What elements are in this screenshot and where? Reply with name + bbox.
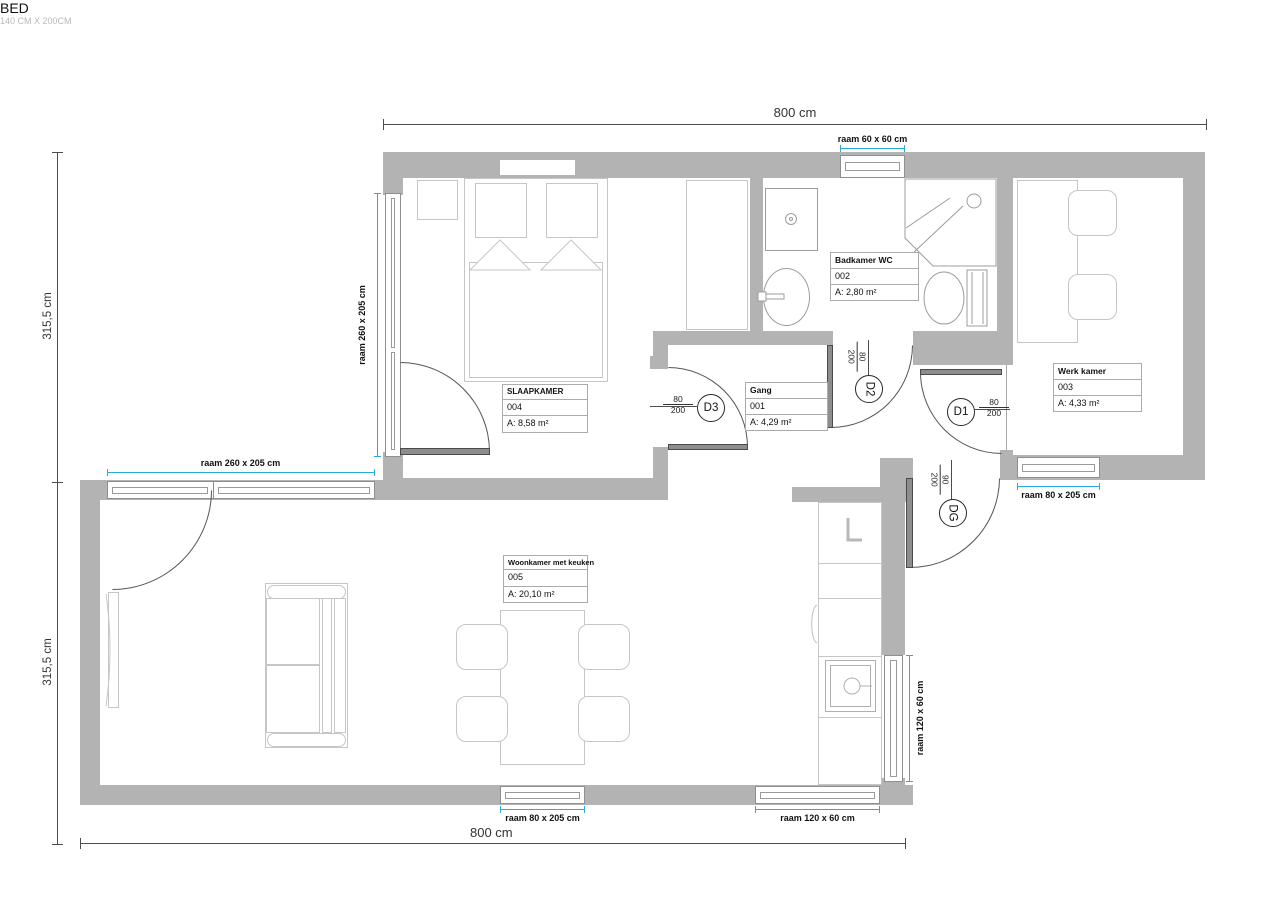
wall-bedroom-bottom-horizontal bbox=[653, 331, 763, 345]
door-height: 200 bbox=[663, 405, 693, 415]
bed-pillow-left bbox=[475, 183, 527, 238]
room-number: 002 bbox=[830, 268, 919, 285]
room-area: A: 4,29 m² bbox=[745, 414, 828, 431]
wall-door-d1-hinge-block bbox=[1000, 450, 1013, 480]
bathroom-sink bbox=[763, 268, 810, 326]
dim-left-line bbox=[57, 152, 58, 845]
toilet bbox=[924, 270, 987, 326]
wall-door-d2-hinge-block bbox=[816, 331, 833, 345]
dim-window-werk-line bbox=[1017, 486, 1100, 487]
dim-tick bbox=[755, 806, 756, 813]
door-width: 80 bbox=[663, 394, 693, 405]
window-glass bbox=[218, 487, 370, 494]
dim-window-werk-label: raam 80 x 205 cm bbox=[996, 490, 1121, 500]
room-table-badkamer: Badkamer WC 002 A: 2,80 m² bbox=[830, 253, 919, 301]
bed-duvet bbox=[469, 262, 603, 378]
desk-chair bbox=[1068, 190, 1117, 236]
dining-table bbox=[500, 610, 585, 765]
door-d1-leaf bbox=[920, 369, 1002, 375]
dim-window-lr-top-label: raam 260 x 205 cm bbox=[178, 458, 303, 468]
door-d2-size: 80 200 bbox=[846, 342, 867, 372]
door-height: 200 bbox=[929, 465, 939, 495]
dim-tick bbox=[500, 806, 501, 813]
door-dg-leaf bbox=[906, 478, 913, 568]
dim-window-lr-b1-line bbox=[500, 809, 585, 810]
kitchen-counter-divider bbox=[818, 656, 882, 657]
washing-machine bbox=[765, 188, 818, 251]
wall-door-d3-hinge-block bbox=[650, 356, 668, 369]
dim-tick bbox=[107, 469, 108, 476]
room-number: 001 bbox=[745, 398, 828, 415]
door-tag-dg: DG bbox=[939, 499, 967, 527]
window-glass bbox=[505, 792, 580, 799]
dim-window-bath-line bbox=[840, 148, 905, 149]
kitchen-sink-basin bbox=[830, 665, 871, 707]
dim-window-lr-right-label: raam 120 x 60 cm bbox=[915, 658, 925, 778]
radiator bbox=[108, 592, 119, 708]
dim-window-bedroom-left-label: raam 260 x 205 cm bbox=[357, 265, 367, 385]
dim-top-label: 800 cm bbox=[383, 105, 1207, 120]
dim-tick bbox=[374, 193, 381, 194]
dim-window-lr-right-line bbox=[909, 655, 910, 782]
desk-chair bbox=[1068, 274, 1117, 320]
dim-tick bbox=[80, 838, 81, 849]
sofa-armrest bbox=[267, 585, 346, 599]
sofa-cushion bbox=[266, 665, 320, 733]
window-glass bbox=[391, 352, 395, 450]
door-d1-size: 80 200 bbox=[979, 397, 1009, 418]
room-number: 003 bbox=[1053, 379, 1142, 396]
window-glass bbox=[1022, 464, 1095, 472]
window-glass bbox=[760, 792, 875, 799]
door-tag-label: D3 bbox=[704, 402, 719, 414]
floor-plan: BED 140 CM X 200CM bbox=[0, 0, 1280, 910]
bed-pillow-right bbox=[546, 183, 598, 238]
dim-window-lr-b2-label: raam 120 x 60 cm bbox=[755, 813, 880, 823]
door-tag-d3: D3 bbox=[697, 394, 725, 422]
bed-label: BED bbox=[0, 0, 144, 16]
dim-left-lower-label: 315,5 cm bbox=[42, 602, 54, 722]
dim-tick bbox=[906, 655, 913, 656]
fridge-handle bbox=[812, 605, 817, 643]
door-d3-leaf bbox=[668, 444, 748, 450]
door-tag-label: D2 bbox=[863, 382, 875, 397]
room-table-woonkamer: Woonkamer met keuken 005 A: 20,10 m² bbox=[503, 556, 588, 603]
room-number: 004 bbox=[502, 399, 588, 416]
window-glass bbox=[391, 198, 395, 348]
wardrobe bbox=[686, 180, 748, 330]
window-livingroom-bottom-right bbox=[755, 786, 880, 804]
wall-livingroom-top-right bbox=[792, 487, 913, 502]
dim-window-lr-top-line bbox=[107, 472, 375, 473]
wall-livingroom-left bbox=[80, 480, 100, 805]
dining-chair bbox=[456, 624, 508, 670]
kitchen-counter-divider bbox=[818, 563, 882, 564]
kitchen-counter-divider bbox=[818, 598, 882, 599]
wall-right bbox=[1183, 178, 1205, 480]
dim-tick bbox=[374, 469, 375, 476]
window-livingroom-bottom-left bbox=[500, 786, 585, 804]
room-name: SLAAPKAMER bbox=[502, 384, 588, 400]
dim-tick bbox=[383, 119, 384, 130]
bedroom-terrace-door-leaf bbox=[400, 448, 490, 455]
door-tag-label: DG bbox=[947, 504, 959, 521]
window-bedroom-left bbox=[385, 193, 401, 457]
room-table-werkkamer: Werk kamer 003 A: 4,33 m² bbox=[1053, 364, 1142, 412]
wall-bedroom-right-lower bbox=[653, 447, 668, 480]
sofa-cushion bbox=[266, 598, 320, 665]
wall-entry-top-block bbox=[913, 331, 1013, 365]
wall-bedroom-bottom bbox=[383, 478, 668, 500]
door-d2-leader-line bbox=[868, 340, 869, 376]
room-name: Werk kamer bbox=[1053, 363, 1142, 380]
door-tag-d1: D1 bbox=[947, 398, 975, 426]
door-height: 200 bbox=[846, 342, 856, 372]
room-table-slaapkamer: SLAAPKAMER 004 A: 8,58 m² bbox=[502, 385, 588, 433]
dim-top-line bbox=[383, 124, 1207, 125]
kitchen-counter bbox=[818, 502, 882, 785]
sofa-back bbox=[322, 598, 332, 733]
door-dg-leader-line bbox=[951, 460, 952, 500]
dim-tick bbox=[1206, 119, 1207, 130]
room-area: A: 2,80 m² bbox=[830, 284, 919, 301]
dim-window-bedroom-left-line bbox=[377, 193, 378, 457]
door-tag-d2: D2 bbox=[855, 375, 883, 403]
wall-vent-inset bbox=[500, 160, 575, 175]
window-mullion bbox=[213, 482, 214, 498]
door-tag-label: D1 bbox=[954, 406, 969, 418]
wall-bathroom-werkkamer-divider bbox=[997, 178, 1013, 331]
wall-bedroom-bathroom-divider bbox=[750, 178, 763, 345]
dim-tick bbox=[905, 838, 906, 849]
dim-tick bbox=[840, 145, 841, 152]
dining-chair bbox=[578, 696, 630, 742]
window-glass bbox=[845, 162, 900, 171]
room-area: A: 8,58 m² bbox=[502, 415, 588, 432]
dim-left-upper-label: 315,5 cm bbox=[42, 256, 54, 376]
door-height: 200 bbox=[979, 408, 1009, 418]
sofa-armrest bbox=[267, 733, 346, 747]
window-werkkamer-bottom bbox=[1017, 457, 1100, 478]
dining-chair bbox=[578, 624, 630, 670]
sofa-back bbox=[334, 598, 346, 733]
dim-window-lr-b1-label: raam 80 x 205 cm bbox=[480, 813, 605, 823]
dim-window-lr-b2-line bbox=[755, 809, 880, 810]
dim-tick bbox=[1017, 483, 1018, 490]
door-dg-size: 90 200 bbox=[929, 465, 950, 495]
room-table-gang: Gang 001 A: 4,29 m² bbox=[745, 383, 828, 431]
room-name: Gang bbox=[745, 382, 828, 399]
dim-window-bath-label: raam 60 x 60 cm bbox=[810, 134, 935, 144]
door-width: 80 bbox=[857, 342, 868, 372]
window-bathroom-top bbox=[840, 155, 905, 178]
dim-tick bbox=[52, 844, 63, 845]
dim-bottom-label: 800 cm bbox=[470, 825, 513, 840]
window-glass bbox=[890, 660, 897, 777]
room-name: Woonkamer met keuken bbox=[503, 555, 588, 570]
kitchen-counter-divider bbox=[818, 717, 882, 718]
room-name: Badkamer WC bbox=[830, 252, 919, 269]
door-width: 80 bbox=[979, 397, 1009, 408]
door-width: 90 bbox=[940, 465, 951, 495]
dim-tick bbox=[584, 806, 585, 813]
livingroom-terrace-door-swing-arc bbox=[112, 490, 212, 590]
dim-tick bbox=[52, 152, 63, 153]
door-d3-size: 80 200 bbox=[663, 394, 693, 415]
dim-tick bbox=[52, 482, 63, 483]
wall-livingroom-right-upper bbox=[882, 502, 905, 655]
dim-tick bbox=[374, 456, 381, 457]
dim-tick bbox=[1099, 483, 1100, 490]
room-number: 005 bbox=[503, 569, 588, 586]
nightstand bbox=[417, 180, 458, 220]
dim-tick bbox=[879, 806, 880, 813]
dim-bottom-line bbox=[80, 843, 906, 844]
window-livingroom-right bbox=[884, 655, 903, 782]
dining-chair bbox=[456, 696, 508, 742]
bed-size-label: 140 CM X 200CM bbox=[0, 16, 144, 26]
room-area: A: 20,10 m² bbox=[503, 586, 588, 603]
dim-tick bbox=[904, 145, 905, 152]
dim-tick bbox=[906, 781, 913, 782]
room-area: A: 4,33 m² bbox=[1053, 395, 1142, 412]
